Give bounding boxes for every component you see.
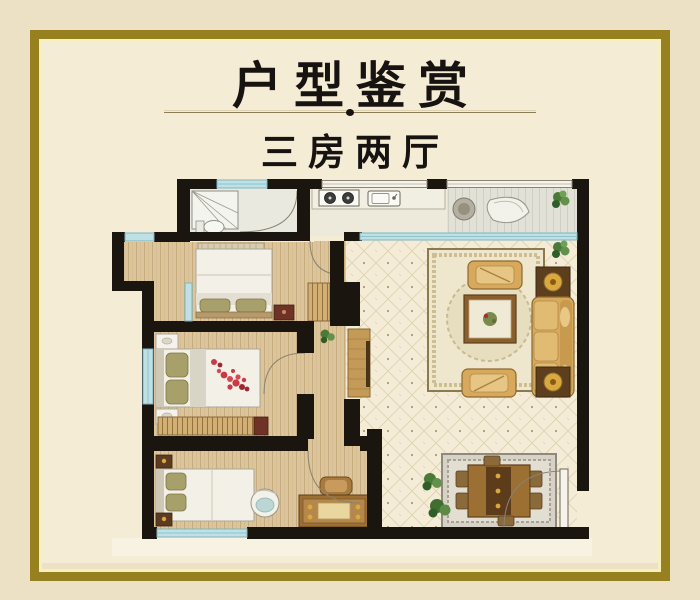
floor-plan-svg xyxy=(112,179,592,541)
nightstand3-bottom-icon xyxy=(156,513,172,526)
divider-dot-icon xyxy=(346,109,354,116)
side-table-lamp-top-icon xyxy=(536,267,570,297)
stove-icon xyxy=(319,190,359,206)
balcony-inner-window-icon xyxy=(360,233,577,240)
bed2-icon xyxy=(196,249,272,318)
coffee-table-icon xyxy=(464,295,516,343)
bathroom-window-icon xyxy=(217,180,267,188)
master-bed-icon xyxy=(156,349,260,407)
master-nightstand-top-icon xyxy=(156,334,178,349)
tv-cabinet-icon xyxy=(348,329,370,397)
armchair-bottom-icon xyxy=(462,369,516,397)
nightstand2-icon xyxy=(274,305,294,320)
master-wardrobe-icon xyxy=(158,417,268,435)
nightstand3-top-icon xyxy=(156,455,172,468)
page-title: 户型鉴赏 xyxy=(0,46,700,118)
kitchen-window-icon xyxy=(322,181,427,188)
balcony-window-icon xyxy=(447,181,572,188)
floor-plan xyxy=(112,179,592,541)
toilet-icon xyxy=(196,221,224,234)
master-window-icon xyxy=(143,349,153,404)
wash-basin-icon xyxy=(453,198,475,220)
desk-icon xyxy=(299,495,369,527)
armchair-top-icon xyxy=(468,261,522,289)
page-subtitle: 三房两厅 xyxy=(0,122,700,176)
bedroom2-side-window-icon xyxy=(185,283,192,321)
side-table-lamp-bottom-icon xyxy=(536,367,570,397)
round-chair-icon xyxy=(251,489,279,517)
kitchen-sink-icon xyxy=(368,191,400,206)
wardrobe2-icon xyxy=(308,283,330,321)
bedroom3-window-icon xyxy=(157,529,247,537)
bay-window-icon xyxy=(125,233,154,241)
desk-chair-icon xyxy=(320,477,352,495)
dining-table-icon xyxy=(468,465,530,517)
